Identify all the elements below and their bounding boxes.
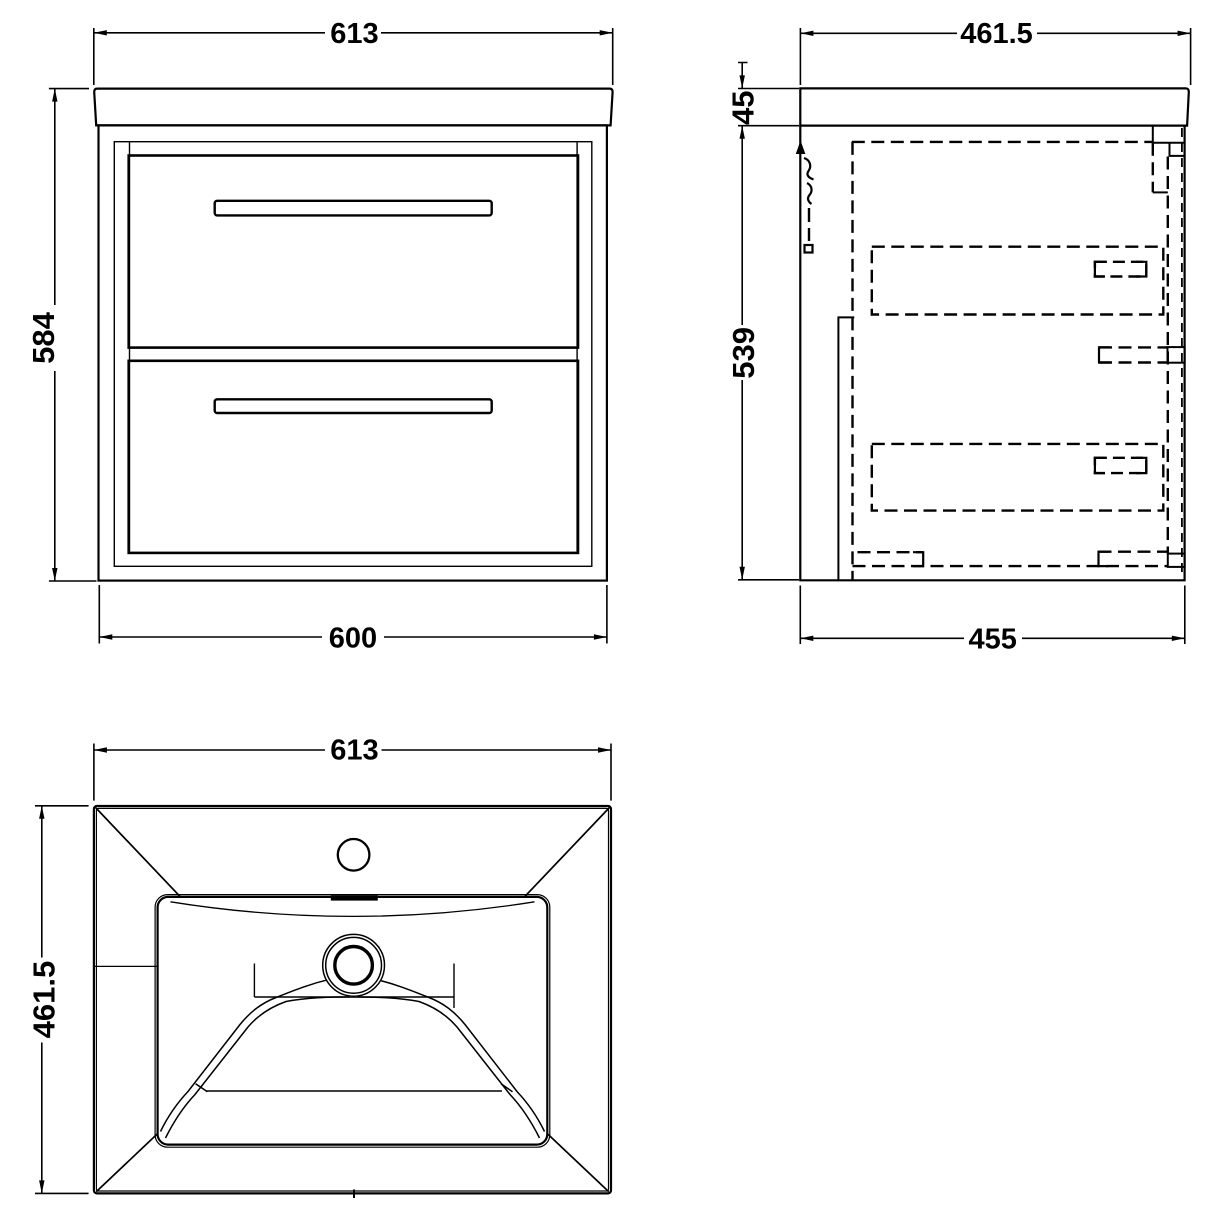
svg-text:539: 539 [726, 327, 761, 379]
svg-text:613: 613 [330, 18, 378, 50]
svg-text:613: 613 [330, 735, 378, 767]
svg-text:584: 584 [26, 311, 61, 363]
svg-text:45: 45 [726, 91, 761, 125]
svg-text:461.5: 461.5 [960, 18, 1033, 50]
svg-text:455: 455 [969, 623, 1017, 655]
svg-text:461.5: 461.5 [26, 961, 61, 1039]
svg-text:600: 600 [329, 622, 377, 654]
